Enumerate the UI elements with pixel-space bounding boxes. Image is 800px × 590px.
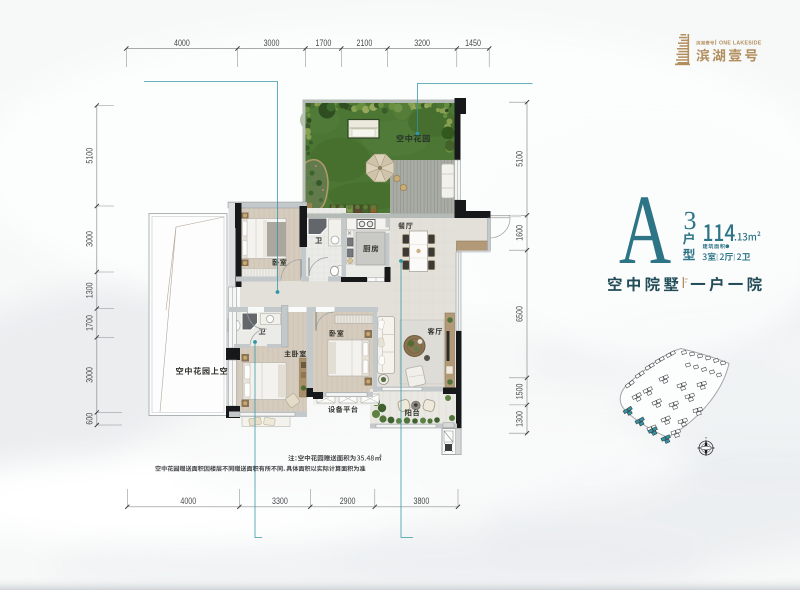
svg-text:3800: 3800 xyxy=(414,495,430,506)
svg-text:3000: 3000 xyxy=(264,37,280,48)
svg-text:600: 600 xyxy=(83,413,94,425)
svg-text:3300: 3300 xyxy=(272,495,288,506)
svg-text:3200: 3200 xyxy=(414,37,430,48)
svg-text:2100: 2100 xyxy=(357,37,373,48)
svg-text:3000: 3000 xyxy=(83,367,94,383)
svg-text:3000: 3000 xyxy=(83,231,94,247)
svg-text:1700: 1700 xyxy=(83,315,94,331)
svg-text:4000: 4000 xyxy=(174,37,190,48)
svg-text:2900: 2900 xyxy=(340,495,356,506)
svg-text:5100: 5100 xyxy=(513,151,524,167)
svg-text:1500: 1500 xyxy=(513,383,524,399)
svg-text:1450: 1450 xyxy=(465,37,481,48)
svg-text:5100: 5100 xyxy=(83,148,94,164)
svg-text:4000: 4000 xyxy=(180,495,196,506)
svg-text:1600: 1600 xyxy=(513,225,524,241)
svg-text:ONE LAKESIDE: ONE LAKESIDE xyxy=(719,41,762,47)
svg-text:6500: 6500 xyxy=(513,306,524,322)
svg-text:1300: 1300 xyxy=(83,282,94,298)
svg-text:1300: 1300 xyxy=(513,411,524,427)
svg-text:1700: 1700 xyxy=(316,37,332,48)
